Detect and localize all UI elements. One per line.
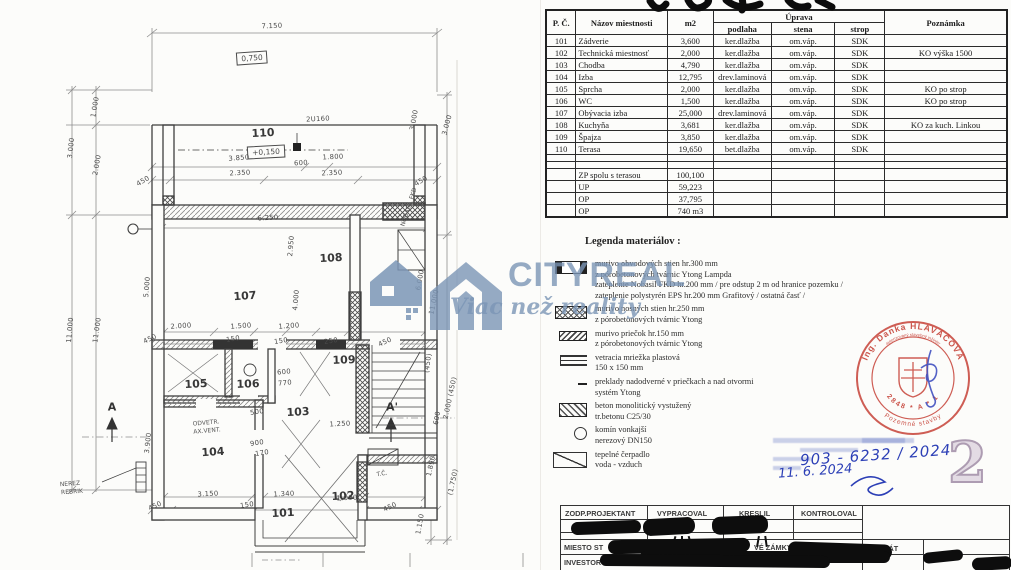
summary-row-cell: OP <box>576 205 668 218</box>
walls <box>102 125 437 552</box>
room-row: 102Technická miestnosť2,000ker.dlažbaom.… <box>546 47 1007 59</box>
room-row-cell: ker.dlažba <box>713 47 771 59</box>
room-row-cell: drev.laminová <box>713 71 771 83</box>
summary-row-cell <box>835 181 885 193</box>
room-row-cell: om.váp. <box>771 83 835 95</box>
room-row-cell: om.váp. <box>771 59 835 71</box>
summary-row-cell: 100,100 <box>667 169 713 181</box>
legend-symbol-col <box>545 353 595 374</box>
redaction <box>643 517 696 537</box>
redaction <box>712 515 769 535</box>
handwritten-signature-squiggle <box>845 468 915 498</box>
summary-row-cell: UP <box>576 181 668 193</box>
summary-row-cell <box>713 181 771 193</box>
wall-300-symbol-icon <box>555 261 587 274</box>
summary-row-cell <box>546 181 576 193</box>
room-row-cell: ker.dlažba <box>713 119 771 131</box>
room-row-cell: drev.laminová <box>713 107 771 119</box>
room-row-cell: SDK <box>835 35 885 47</box>
summary-row-cell <box>771 181 835 193</box>
col-header-area: m2 <box>667 10 713 35</box>
room-row-cell: 25,000 <box>667 107 713 119</box>
summary-row-cell <box>713 169 771 181</box>
blank-row-cell <box>835 155 885 162</box>
summary-row-cell <box>885 181 1007 193</box>
room-row-cell: 106 <box>546 95 576 107</box>
room-row-cell: om.váp. <box>771 47 835 59</box>
wall-150-symbol-icon <box>559 331 587 341</box>
room-row-cell: KO po strop <box>885 95 1007 107</box>
room-row-cell: 19,650 <box>667 143 713 155</box>
section-markers <box>107 418 396 442</box>
blank-row-cell <box>885 155 1007 162</box>
room-row-cell <box>885 143 1007 155</box>
summary-row: ZP spolu s terasou100,100 <box>546 169 1007 181</box>
room-row: 110Terasa19,650bet.dlažbaom.váp.SDK <box>546 143 1007 155</box>
blank-row-cell <box>667 155 713 162</box>
blank-row-cell <box>713 155 771 162</box>
summary-row-cell <box>771 169 835 181</box>
stamp-name: Ing. Danka HLAVÁČOVÁ <box>860 321 967 362</box>
title-block-divider <box>793 506 794 539</box>
room-row: 109Špajza3,850ker.dlažbaom.váp.SDK <box>546 131 1007 143</box>
room-row-cell: 3,850 <box>667 131 713 143</box>
blank-row-cell <box>713 162 771 169</box>
summary-row: UP59,223 <box>546 181 1007 193</box>
col-header-stena: stena <box>771 23 835 35</box>
redaction <box>571 520 641 535</box>
summary-row-cell: 37,795 <box>667 193 713 205</box>
summary-row-cell <box>885 169 1007 181</box>
summary-row-cell <box>713 205 771 218</box>
room-row-cell: Chodba <box>576 59 668 71</box>
summary-row-cell: 59,223 <box>667 181 713 193</box>
blank-row-cell <box>576 155 668 162</box>
room-row-cell: 102 <box>546 47 576 59</box>
summary-row-cell <box>885 205 1007 218</box>
legend-symbol-col <box>545 401 595 422</box>
summary-row: OP37,795 <box>546 193 1007 205</box>
room-row-cell: Technická miestnosť <box>576 47 668 59</box>
blank-row-cell <box>771 162 835 169</box>
room-row-cell: 3,600 <box>667 35 713 47</box>
scanned-drawing-page: 7.1500,7502U160110+0,1503.8506001.800450… <box>0 0 1011 570</box>
redaction <box>972 556 1011 570</box>
summary-row-cell: ZP spolu s terasou <box>576 169 668 181</box>
legend-item: murivo obvodových stien hr.300 mmz pórob… <box>545 259 975 301</box>
room-row-cell: om.váp. <box>771 119 835 131</box>
room-row: 103Chodba4,790ker.dlažbaom.váp.SDK <box>546 59 1007 71</box>
room-row-cell: SDK <box>835 107 885 119</box>
room-row-cell: SDK <box>835 131 885 143</box>
room-row-cell: Špajza <box>576 131 668 143</box>
room-row-cell: SDK <box>835 71 885 83</box>
lintel-symbol-icon <box>578 383 587 386</box>
room-row-cell: SDK <box>835 95 885 107</box>
blank-row-cell <box>576 162 668 169</box>
svg-text:Ing. Danka HLAVÁČOVÁ: Ing. Danka HLAVÁČOVÁ <box>860 321 967 362</box>
col-header-uprava: Úprava <box>713 10 884 23</box>
room-table: P. Č. Názov miestnosti m2 Úprava Poznámk… <box>545 9 1008 218</box>
miesto-label: MIESTO ST <box>564 543 603 552</box>
legend-line: murivo obvodových stien hr.300 mm <box>595 259 975 270</box>
room-row-cell: 104 <box>546 71 576 83</box>
room-row-cell: om.váp. <box>771 95 835 107</box>
room-row: 108Kuchyňa3,681ker.dlažbaom.váp.SDKKO za… <box>546 119 1007 131</box>
summary-row-cell <box>835 205 885 218</box>
legend-item-text: murivo obvodových stien hr.300 mmz pórob… <box>595 259 975 301</box>
blank-row-cell <box>546 162 576 169</box>
room-row-cell: 3,681 <box>667 119 713 131</box>
room-row-cell: om.váp. <box>771 143 835 155</box>
blank-row <box>546 155 1007 162</box>
legend-symbol-col <box>545 425 595 446</box>
summary-row-cell <box>546 193 576 205</box>
room-row-cell: 108 <box>546 119 576 131</box>
room-table-header-row: P. Č. Názov miestnosti m2 Úprava Poznámk… <box>546 10 1007 23</box>
summary-row-cell <box>835 169 885 181</box>
room-row-cell: ker.dlažba <box>713 95 771 107</box>
summary-row-cell <box>546 205 576 218</box>
room-row-cell: 107 <box>546 107 576 119</box>
room-row-cell: om.váp. <box>771 71 835 83</box>
room-row-cell: bet.dlažba <box>713 143 771 155</box>
summary-row-cell <box>885 193 1007 205</box>
col-header-note: Poznámka <box>885 10 1007 35</box>
room-row-cell: 101 <box>546 35 576 47</box>
blank-row-cell <box>771 155 835 162</box>
room-row-cell: SDK <box>835 143 885 155</box>
col-header-strop: strop <box>835 23 885 35</box>
room-row-cell: KO po strop <box>885 83 1007 95</box>
summary-row-cell: OP <box>576 193 668 205</box>
legend-symbol-col <box>545 450 595 471</box>
summary-row: OP740 m3 <box>546 205 1007 218</box>
room-row-cell: SDK <box>835 47 885 59</box>
dimension-lines <box>66 28 523 567</box>
chimney-symbol-icon <box>574 427 587 440</box>
summary-row-cell <box>771 193 835 205</box>
room-row-cell: Sprcha <box>576 83 668 95</box>
room-row-cell <box>885 71 1007 83</box>
legend-symbol-col <box>545 377 595 398</box>
page-number-mark: 2 <box>948 430 987 496</box>
room-row-cell: 4,790 <box>667 59 713 71</box>
title-block-header: KONTROLOVAL <box>801 509 857 518</box>
room-row-cell: 110 <box>546 143 576 155</box>
room-row-cell: Obývacia izba <box>576 107 668 119</box>
room-row-cell <box>885 59 1007 71</box>
room-row-cell: 2,000 <box>667 47 713 59</box>
concrete-symbol-icon <box>559 403 587 417</box>
legend-symbol-col <box>545 259 595 301</box>
room-row-cell: 1,500 <box>667 95 713 107</box>
summary-row-cell <box>771 205 835 218</box>
room-row-cell: Zádverie <box>576 35 668 47</box>
svg-text:Pozemné stavby: Pozemné stavby <box>883 412 943 428</box>
investor-label: INVESTOR <box>564 558 601 567</box>
room-row-cell <box>885 107 1007 119</box>
pen-stroke <box>764 536 767 547</box>
room-row-cell: SDK <box>835 59 885 71</box>
floor-plan-drawing <box>0 0 540 570</box>
col-header-podlaha: podlaha <box>713 23 771 35</box>
room-row-cell: om.váp. <box>771 107 835 119</box>
room-row-cell: 12,795 <box>667 71 713 83</box>
legend-line: zateplenie Nobasil FKD hr.200 mm / pre o… <box>595 280 975 291</box>
room-row-cell: om.váp. <box>771 35 835 47</box>
redaction <box>600 554 830 568</box>
room-row: 104Izba12,795drev.laminováom.váp.SDK <box>546 71 1007 83</box>
room-row-cell: Izba <box>576 71 668 83</box>
room-row-cell: SDK <box>835 119 885 131</box>
col-header-pc: P. Č. <box>546 10 576 35</box>
blank-row-cell <box>885 162 1007 169</box>
heatpump-symbol-icon <box>553 452 587 468</box>
room-row-cell: 109 <box>546 131 576 143</box>
room-row-cell: Kuchyňa <box>576 119 668 131</box>
room-row-cell: WC <box>576 95 668 107</box>
room-row-cell: Terasa <box>576 143 668 155</box>
room-row-cell: ker.dlažba <box>713 59 771 71</box>
room-row-cell: ker.dlažba <box>713 83 771 95</box>
room-row-cell: 103 <box>546 59 576 71</box>
stamp-category: Pozemné stavby <box>883 412 943 428</box>
blank-row-cell <box>835 162 885 169</box>
wall-250-symbol-icon <box>555 306 587 319</box>
blank-row-cell <box>546 155 576 162</box>
legend-symbol-col <box>545 304 595 325</box>
title-block-divider <box>561 519 862 520</box>
title-block-header: ZODP.PROJEKTANT <box>565 509 635 518</box>
room-row-cell <box>885 131 1007 143</box>
room-row-cell: ker.dlažba <box>713 131 771 143</box>
sheet-edge <box>540 0 541 570</box>
blank-row <box>546 162 1007 169</box>
room-row-cell: ker.dlažba <box>713 35 771 47</box>
legend-line: z pórobetonových tvárnic Ytong Lampda <box>595 270 975 281</box>
room-row: 101Zádverie3,600ker.dlažbaom.váp.SDK <box>546 35 1007 47</box>
room-row-cell: om.váp. <box>771 131 835 143</box>
summary-row-cell <box>546 169 576 181</box>
summary-row-cell <box>713 193 771 205</box>
summary-row-cell <box>835 193 885 205</box>
room-row: 107Obývacia izba25,000drev.laminováom.vá… <box>546 107 1007 119</box>
room-row-cell: 2,000 <box>667 83 713 95</box>
room-row: 105Sprcha2,000ker.dlažbaom.váp.SDKKO po … <box>546 83 1007 95</box>
legend-symbol-col <box>545 329 595 350</box>
room-row: 106WC1,500ker.dlažbaom.váp.SDKKO po stro… <box>546 95 1007 107</box>
vent-symbol-icon <box>560 355 587 366</box>
room-row-cell: KO za kuch. Linkou <box>885 119 1007 131</box>
room-row-cell: KO výška 1500 <box>885 47 1007 59</box>
blank-row-cell <box>667 162 713 169</box>
room-row-cell <box>885 35 1007 47</box>
col-header-name: Názov miestnosti <box>576 10 668 35</box>
room-row-cell: SDK <box>835 83 885 95</box>
legend-title: Legenda materiálov : <box>585 236 975 247</box>
summary-row-cell: 740 m3 <box>667 205 713 218</box>
room-row-cell: 105 <box>546 83 576 95</box>
legend-line: zateplenie polystyrén EPS hr.200 mm Graf… <box>595 291 975 302</box>
